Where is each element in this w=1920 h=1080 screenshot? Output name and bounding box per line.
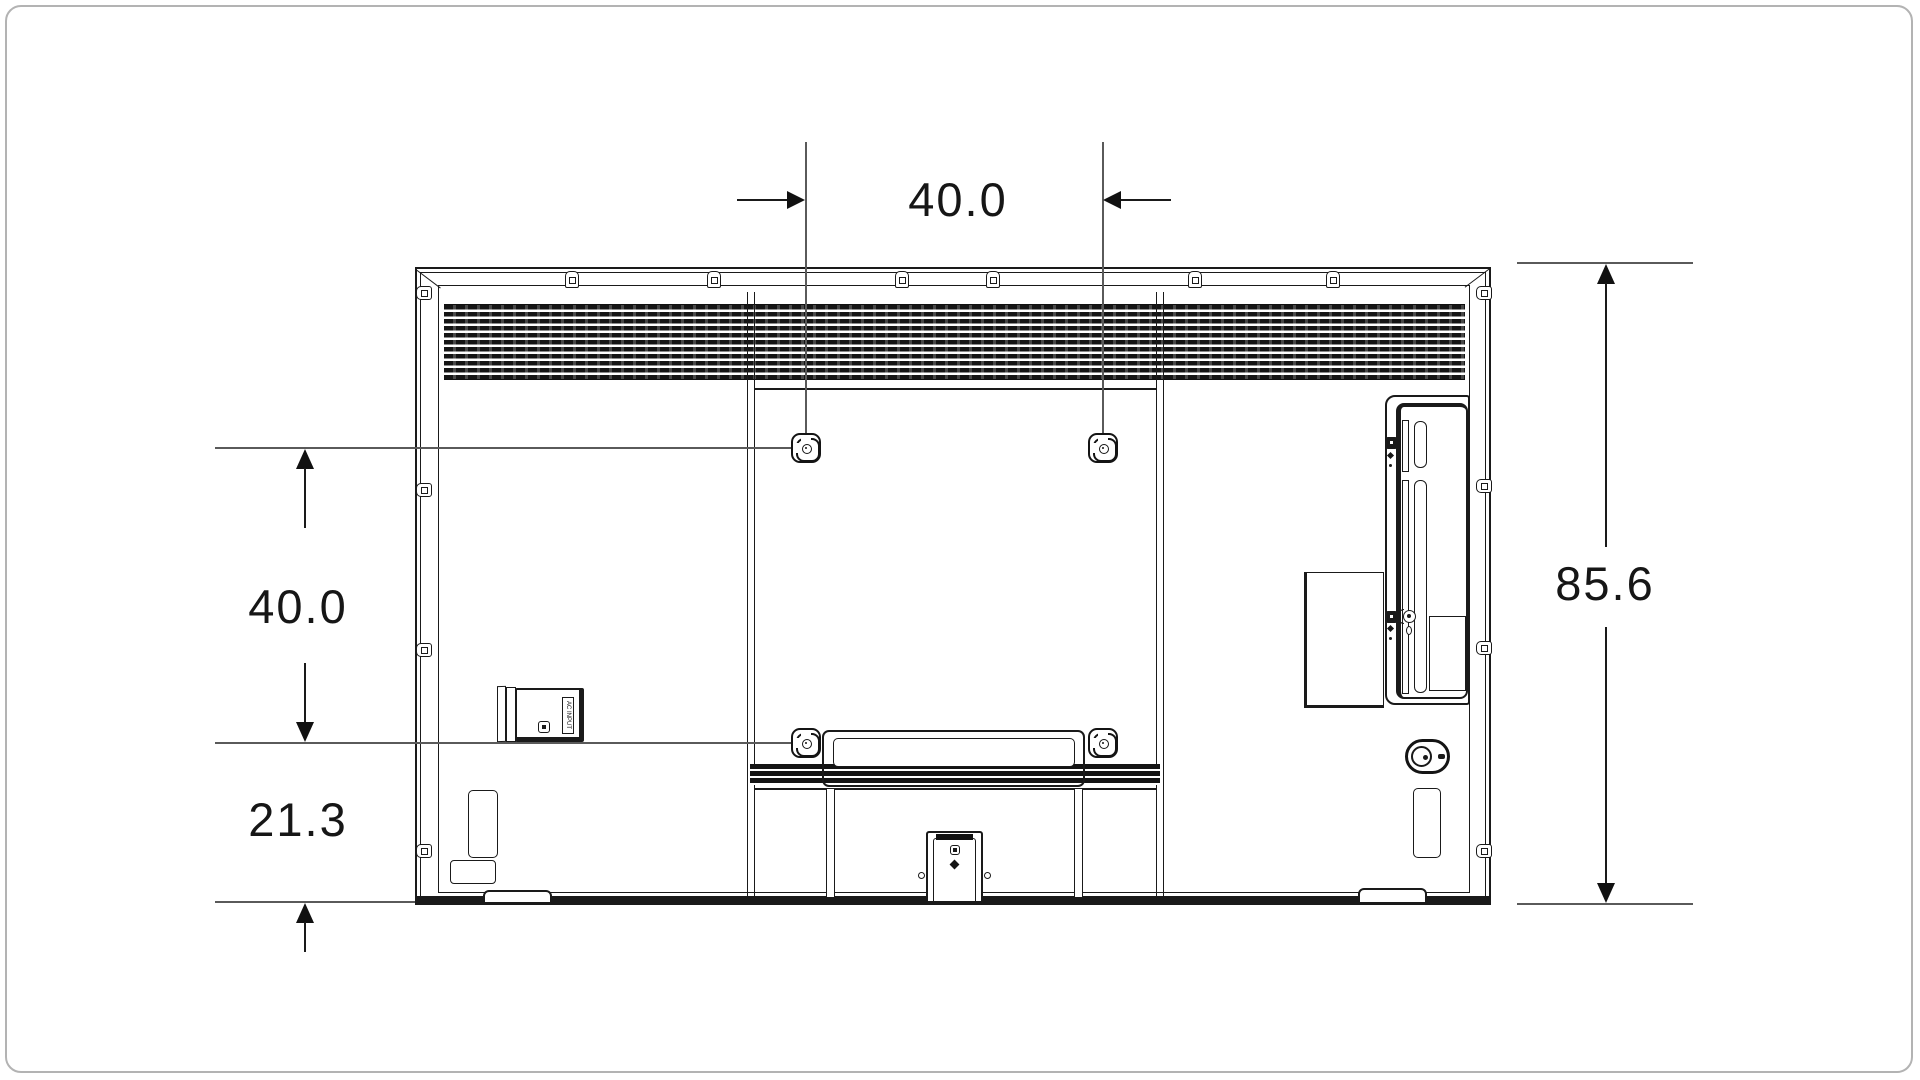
terminal-strip (1402, 480, 1409, 694)
dim-arrow-down-icon (1597, 883, 1615, 903)
vesa-hole-bottom-left (791, 728, 821, 758)
vesa-hole-top-left (791, 433, 821, 463)
dim-arrow-up-icon (1597, 264, 1615, 284)
mount-clip-icon (565, 271, 579, 288)
mount-clip-icon (1476, 286, 1492, 300)
mount-clip-icon (416, 286, 432, 300)
mount-clip-icon (1476, 479, 1492, 493)
dim-label-mount-height: 40.0 (213, 581, 383, 633)
leader-line (215, 901, 415, 903)
dot-icon (1389, 464, 1392, 467)
dim-arrow-shaft (737, 199, 789, 201)
power-connector-socket (1411, 746, 1432, 767)
dim-arrow-right-icon (787, 191, 805, 209)
port-pin (1390, 615, 1393, 618)
rear-slot-left-tall (468, 790, 498, 858)
mount-clip-icon (895, 271, 909, 288)
terminal-slot-top (1414, 421, 1427, 468)
stand-screw-icon (984, 872, 991, 879)
dim-arrow-down-icon (296, 722, 314, 742)
ac-inlet-screw-pin (542, 725, 546, 729)
ac-inlet-flange (497, 686, 506, 742)
terminal-bay-box (1429, 616, 1466, 691)
dot-icon (1389, 637, 1392, 640)
dim-arrow-up-icon (296, 903, 314, 923)
dim-arrow-shaft (304, 663, 306, 723)
stand-column-right (1074, 789, 1083, 897)
vent-grille (444, 304, 1465, 380)
stand-column-left (826, 789, 835, 897)
mount-clip-icon (1476, 844, 1492, 858)
vesa-hole-bottom-right (1088, 728, 1118, 758)
center-panel-left-edge (747, 292, 755, 902)
power-connector-pin (1423, 755, 1428, 760)
stand-cover-cap (936, 834, 973, 840)
terminal-slot-tall (1414, 480, 1427, 693)
rear-slot-right-tall (1413, 788, 1441, 858)
mount-clip-icon (416, 844, 432, 858)
mount-clip-icon (1476, 641, 1492, 655)
dim-label-panel-height: 85.6 (1520, 558, 1690, 610)
dim-arrow-shaft (1605, 627, 1607, 885)
dim-arrow-shaft (304, 468, 306, 528)
dim-arrow-left-icon (1103, 191, 1121, 209)
speaker-bar-inner (833, 738, 1075, 767)
ac-inlet-label: AC INPUT (562, 697, 574, 734)
dim-label-bottom-offset: 21.3 (213, 794, 383, 846)
extension-line (1102, 142, 1104, 449)
mount-clip-icon (416, 483, 432, 497)
dim-arrow-shaft (1119, 199, 1171, 201)
dim-arrow-shaft (1605, 283, 1607, 547)
vesa-hole-top-right (1088, 433, 1118, 463)
leader-line (215, 742, 806, 744)
foot-bracket-left (483, 890, 552, 904)
stand-screw-icon (918, 872, 925, 879)
foot-bracket-right (1358, 888, 1427, 904)
terminal-strip (1402, 420, 1409, 472)
dim-arrow-shaft (304, 922, 306, 952)
rear-access-panel (1304, 572, 1384, 708)
port-pin (1390, 441, 1393, 444)
extension-line (805, 142, 807, 449)
screw-center (1407, 614, 1411, 618)
dim-label-mount-width: 40.0 (873, 174, 1043, 226)
mount-clip-icon (986, 271, 1000, 288)
dim-arrow-up-icon (296, 449, 314, 469)
leader-line (1517, 903, 1693, 905)
rear-slot-left-wide (450, 860, 496, 884)
band-bottom-line (755, 788, 1156, 790)
center-panel-top-edge (755, 388, 1156, 390)
mount-clip-icon (707, 271, 721, 288)
power-connector-key (1438, 754, 1445, 759)
mount-clip-icon (416, 643, 432, 657)
stand-port-pin (953, 848, 957, 852)
mount-clip-icon (1326, 271, 1340, 288)
mount-clip-icon (1188, 271, 1202, 288)
diagram-canvas: AC INPUT (0, 0, 1920, 1080)
center-panel-right-edge (1156, 292, 1164, 902)
zero-mark (1406, 626, 1412, 635)
